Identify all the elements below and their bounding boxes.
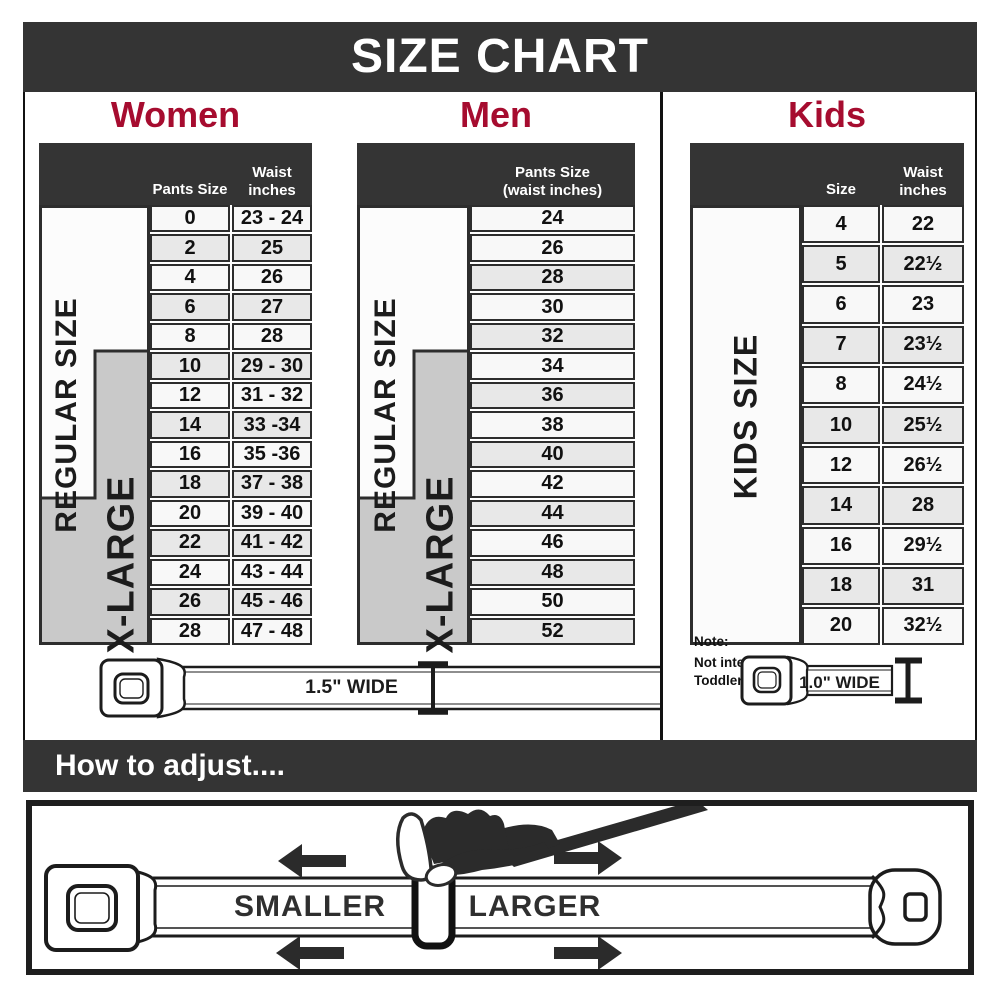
- table-row: 2645 - 46: [150, 588, 312, 615]
- pants-size-cell: 16: [150, 441, 230, 468]
- men-rows: 242628303234363840424446485052: [470, 205, 635, 645]
- size-cell: 20: [802, 607, 880, 645]
- pants-size-cell: 24: [150, 559, 230, 586]
- size-cell: 18: [802, 567, 880, 605]
- waist-inches-cell: 28: [882, 486, 964, 524]
- women-rows: 023 - 242254266278281029 - 301231 - 3214…: [150, 205, 312, 645]
- table-row: 2241 - 42: [150, 529, 312, 556]
- pants-size-cell: 36: [470, 382, 635, 409]
- waist-inches-cell: 23 - 24: [232, 205, 312, 232]
- pants-size-cell: 26: [150, 588, 230, 615]
- table-row: 48: [470, 559, 635, 586]
- adult-belt-width-label: 1.5" WIDE: [289, 676, 414, 698]
- table-row: 50: [470, 588, 635, 615]
- size-cell: 14: [802, 486, 880, 524]
- chart-frame: Women Men Kids Pants Size Waist inches R…: [23, 92, 977, 740]
- table-row: 2443 - 44: [150, 559, 312, 586]
- table-row: 422: [802, 205, 964, 243]
- table-row: 828: [150, 323, 312, 350]
- hand-illustration: [398, 806, 708, 889]
- pants-size-cell: 42: [470, 470, 635, 497]
- table-row: 52: [470, 618, 635, 645]
- kids-col-size: Size: [802, 181, 880, 199]
- pants-size-cell: 38: [470, 411, 635, 438]
- table-row: 26: [470, 234, 635, 261]
- page-title-text: SIZE CHART: [351, 30, 649, 83]
- pants-size-cell: 52: [470, 618, 635, 645]
- how-to-adjust-heading: How to adjust....: [23, 740, 977, 792]
- pants-size-cell: 30: [470, 293, 635, 320]
- waist-inches-cell: 29½: [882, 527, 964, 565]
- table-row: 1029 - 30: [150, 352, 312, 379]
- table-row: 1231 - 32: [150, 382, 312, 409]
- table-row: 522½: [802, 245, 964, 283]
- size-cell: 7: [802, 326, 880, 364]
- waist-inches-cell: 47 - 48: [232, 618, 312, 645]
- width-measure-mark: [895, 660, 922, 701]
- men-regular-size-label: REGULAR SIZE: [369, 265, 403, 565]
- women-col-pants-size: Pants Size: [150, 181, 230, 199]
- kids-belt-width-label: 1.0" WIDE: [787, 673, 892, 693]
- table-row: 723½: [802, 326, 964, 364]
- table-row: 32: [470, 323, 635, 350]
- size-cell: 16: [802, 527, 880, 565]
- table-row: 2039 - 40: [150, 500, 312, 527]
- pants-size-cell: 50: [470, 588, 635, 615]
- kids-heading: Kids: [690, 94, 964, 138]
- waist-inches-cell: 23: [882, 285, 964, 323]
- pants-size-cell: 14: [150, 411, 230, 438]
- table-row: 34: [470, 352, 635, 379]
- waist-inches-cell: 26: [232, 264, 312, 291]
- table-row: 36: [470, 382, 635, 409]
- pants-size-cell: 44: [470, 500, 635, 527]
- waist-inches-cell: 26½: [882, 446, 964, 484]
- pants-size-cell: 8: [150, 323, 230, 350]
- pants-size-cell: 22: [150, 529, 230, 556]
- size-cell: 6: [802, 285, 880, 323]
- pants-size-cell: 48: [470, 559, 635, 586]
- table-row: 824½: [802, 366, 964, 404]
- waist-inches-cell: 37 - 38: [232, 470, 312, 497]
- kids-section-divider: [660, 92, 663, 740]
- pants-size-cell: 28: [470, 264, 635, 291]
- men-col-pants-size: Pants Size (waist inches): [470, 164, 635, 200]
- table-row: 1025½: [802, 406, 964, 444]
- women-regular-size-label: REGULAR SIZE: [50, 265, 84, 565]
- pants-size-cell: 40: [470, 441, 635, 468]
- table-row: 2032½: [802, 607, 964, 645]
- size-cell: 4: [802, 205, 880, 243]
- waist-inches-cell: 39 - 40: [232, 500, 312, 527]
- women-col-waist: Waist inches: [232, 164, 312, 200]
- waist-inches-cell: 31 - 32: [232, 382, 312, 409]
- table-row: 24: [470, 205, 635, 232]
- waist-inches-cell: 28: [232, 323, 312, 350]
- table-row: 1226½: [802, 446, 964, 484]
- pants-size-cell: 18: [150, 470, 230, 497]
- table-row: 2847 - 48: [150, 618, 312, 645]
- pants-size-cell: 12: [150, 382, 230, 409]
- size-chart-page: SIZE CHART Women Men Kids Pants Size Wai…: [0, 0, 1000, 1000]
- seatbelt-buckle: [46, 866, 156, 950]
- adjust-illustration-box: SMALLER LARGER: [26, 800, 974, 975]
- women-heading: Women: [39, 94, 312, 138]
- table-row: 46: [470, 529, 635, 556]
- pants-size-cell: 10: [150, 352, 230, 379]
- belt-tip: [870, 870, 940, 944]
- table-row: 225: [150, 234, 312, 261]
- table-row: 627: [150, 293, 312, 320]
- page-title: SIZE CHART: [23, 22, 977, 92]
- table-row: 40: [470, 441, 635, 468]
- pants-size-cell: 34: [470, 352, 635, 379]
- table-row: 023 - 24: [150, 205, 312, 232]
- table-row: 28: [470, 264, 635, 291]
- size-cell: 10: [802, 406, 880, 444]
- kids-size-label: KIDS SIZE: [728, 227, 765, 607]
- pants-size-cell: 32: [470, 323, 635, 350]
- size-cell: 5: [802, 245, 880, 283]
- table-row: 1428: [802, 486, 964, 524]
- pants-size-cell: 0: [150, 205, 230, 232]
- men-table: Pants Size (waist inches) REGULAR SIZE X…: [357, 143, 635, 645]
- table-row: 1837 - 38: [150, 470, 312, 497]
- size-cell: 12: [802, 446, 880, 484]
- larger-label: LARGER: [455, 890, 615, 924]
- table-row: 1433 -34: [150, 411, 312, 438]
- waist-inches-cell: 33 -34: [232, 411, 312, 438]
- waist-inches-cell: 22: [882, 205, 964, 243]
- waist-inches-cell: 43 - 44: [232, 559, 312, 586]
- kids-col-waist: Waist inches: [882, 164, 964, 200]
- waist-inches-cell: 27: [232, 293, 312, 320]
- waist-inches-cell: 29 - 30: [232, 352, 312, 379]
- pants-size-cell: 46: [470, 529, 635, 556]
- table-row: 623: [802, 285, 964, 323]
- pants-size-cell: 20: [150, 500, 230, 527]
- table-row: 44: [470, 500, 635, 527]
- adjust-belt-illustration: [32, 806, 968, 969]
- waist-inches-cell: 23½: [882, 326, 964, 364]
- men-heading: Men: [357, 94, 635, 138]
- pants-size-cell: 4: [150, 264, 230, 291]
- waist-inches-cell: 32½: [882, 607, 964, 645]
- waist-inches-cell: 25: [232, 234, 312, 261]
- table-row: 1629½: [802, 527, 964, 565]
- kids-note-line: Note:: [694, 633, 802, 651]
- table-row: 38: [470, 411, 635, 438]
- waist-inches-cell: 41 - 42: [232, 529, 312, 556]
- table-row: 426: [150, 264, 312, 291]
- table-row: 1831: [802, 567, 964, 605]
- women-table: Pants Size Waist inches REGULAR SIZE X-L…: [39, 143, 312, 645]
- kids-table: Size Waist inches KIDS SIZE Note:Not int…: [690, 143, 964, 645]
- table-row: 1635 -36: [150, 441, 312, 468]
- waist-inches-cell: 35 -36: [232, 441, 312, 468]
- waist-inches-cell: 24½: [882, 366, 964, 404]
- waist-inches-cell: 25½: [882, 406, 964, 444]
- waist-inches-cell: 22½: [882, 245, 964, 283]
- size-cell: 8: [802, 366, 880, 404]
- kids-rows: 422522½623723½824½1025½1226½14281629½183…: [802, 205, 964, 645]
- smaller-label: SMALLER: [220, 890, 400, 924]
- pants-size-cell: 26: [470, 234, 635, 261]
- pants-size-cell: 6: [150, 293, 230, 320]
- waist-inches-cell: 31: [882, 567, 964, 605]
- table-row: 30: [470, 293, 635, 320]
- waist-inches-cell: 45 - 46: [232, 588, 312, 615]
- pants-size-cell: 28: [150, 618, 230, 645]
- table-row: 42: [470, 470, 635, 497]
- pants-size-cell: 24: [470, 205, 635, 232]
- pants-size-cell: 2: [150, 234, 230, 261]
